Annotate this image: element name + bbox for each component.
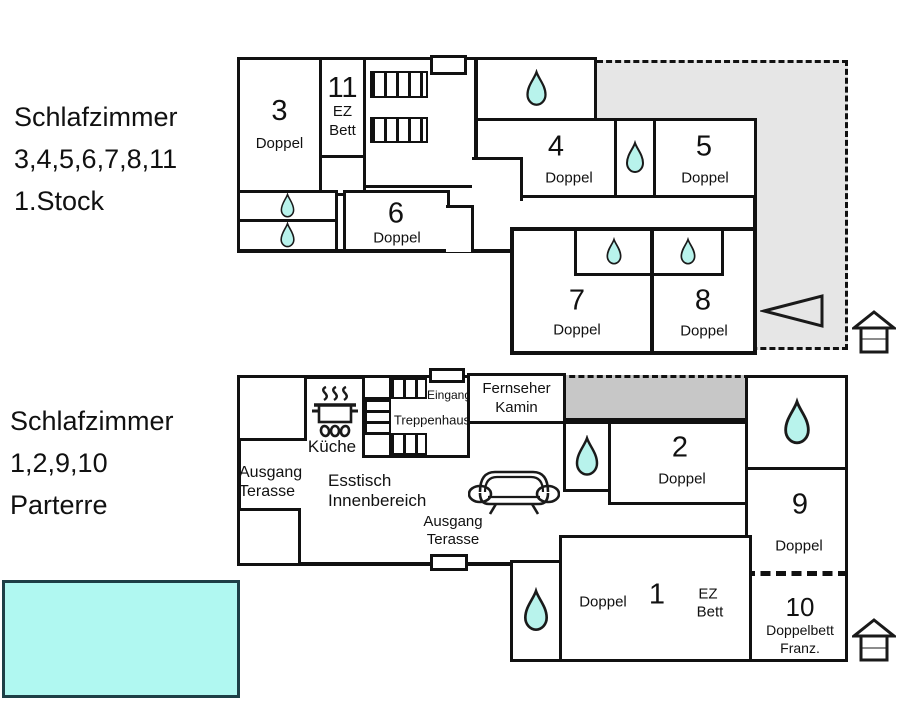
floorplan-canvas: Schlafzimmer 3,4,5,6,7,8,11 1.Stock Schl… bbox=[0, 0, 904, 704]
exit-terrace-left-label: Ausgang Terasse bbox=[239, 464, 302, 502]
dining-area-line1: Esstisch bbox=[328, 471, 426, 491]
rooms-7-8-block: 7 Doppel 8 Doppel bbox=[510, 227, 757, 355]
title-floor1-line2: 3,4,5,6,7,8,11 bbox=[14, 138, 178, 180]
stairs-flight-icon bbox=[389, 378, 427, 399]
wc-floor1-lower bbox=[237, 219, 338, 252]
room-3: 3 Doppel bbox=[237, 57, 322, 193]
tv-fireplace-room: Fernseher Kamin bbox=[467, 373, 566, 424]
window-floor0-bottom bbox=[430, 554, 468, 571]
house-ground-floor-icon bbox=[852, 618, 896, 662]
room-11-number: 11 bbox=[327, 74, 357, 103]
entrance-door bbox=[429, 368, 465, 383]
kitchen-label: Küche bbox=[308, 437, 356, 457]
room-4-type: Doppel bbox=[545, 171, 593, 186]
house-upper-floor-icon bbox=[852, 310, 896, 354]
room-2-type: Doppel bbox=[658, 472, 706, 487]
water-drop-icon bbox=[572, 435, 602, 479]
room-6-type: Doppel bbox=[373, 231, 421, 246]
dining-area-label: Esstisch Innenbereich bbox=[328, 471, 426, 511]
tv-label-line1: Fernseher bbox=[482, 380, 550, 399]
water-drop-icon bbox=[604, 237, 624, 267]
stairwell-floor1 bbox=[363, 57, 477, 188]
arrow-left-icon bbox=[760, 292, 826, 330]
bath-room7 bbox=[574, 231, 654, 276]
room-5-type: Doppel bbox=[681, 171, 729, 186]
title-floor0-line1: Schlafzimmer bbox=[10, 400, 174, 442]
room-10-type-line1: Doppelbett bbox=[766, 623, 834, 637]
stairwell-label: Treppenhaus bbox=[394, 414, 470, 427]
stairs-flight-icon bbox=[365, 397, 391, 435]
exit-terrace-left-line1: Ausgang bbox=[239, 464, 302, 483]
room-7-type: Doppel bbox=[553, 323, 601, 338]
bath-floor0-bottom bbox=[510, 560, 562, 662]
water-drop-icon bbox=[523, 69, 550, 109]
room-1-type-right-line1: EZ bbox=[698, 587, 717, 602]
bath-floor0-center bbox=[563, 421, 611, 492]
terrace-bar-floor0 bbox=[560, 375, 750, 421]
water-drop-icon bbox=[623, 140, 647, 176]
water-drop-icon bbox=[278, 193, 297, 219]
room-9: 9 Doppel bbox=[745, 467, 848, 574]
room-1: Doppel 1 EZ Bett bbox=[559, 535, 752, 662]
room-6-step bbox=[446, 205, 474, 252]
tv-label-line2: Kamin bbox=[495, 399, 538, 418]
sofa-icon bbox=[468, 460, 560, 516]
water-drop-icon bbox=[520, 587, 552, 635]
bath-between-4-5 bbox=[614, 118, 656, 198]
bath-above-room4 bbox=[475, 57, 597, 121]
room-11: 11 EZ Bett bbox=[319, 57, 366, 158]
room-5: 5 Doppel bbox=[653, 118, 757, 198]
exit-terrace-left-line2: Terasse bbox=[239, 483, 302, 502]
room-6-number: 6 bbox=[388, 200, 404, 229]
room-1-number: 1 bbox=[649, 581, 665, 610]
room-5-number: 5 bbox=[696, 133, 712, 162]
room-10: 10 Doppelbett Franz. bbox=[745, 571, 848, 662]
stairs-flight-icon bbox=[389, 433, 427, 455]
dining-area-line2: Innenbereich bbox=[328, 491, 426, 511]
storage-room bbox=[237, 375, 307, 441]
corridor-notch-floor1 bbox=[472, 157, 523, 201]
room-3-number: 3 bbox=[271, 97, 287, 126]
room-2-number: 2 bbox=[672, 434, 688, 463]
entrance-label: Eingang bbox=[427, 389, 471, 401]
wc-floor1-upper bbox=[237, 190, 338, 222]
title-floor0-line3: Parterre bbox=[10, 484, 174, 526]
room-9-number: 9 bbox=[792, 491, 808, 520]
water-drop-icon bbox=[780, 397, 814, 449]
room-10-number: 10 bbox=[786, 594, 815, 620]
room-4-number: 4 bbox=[548, 133, 564, 162]
corridor-floor1 bbox=[458, 196, 754, 230]
room-8-number: 8 bbox=[695, 287, 711, 316]
room-11-type-line2: Bett bbox=[329, 122, 356, 141]
bath-room8 bbox=[654, 231, 724, 276]
room-6: 6 Doppel bbox=[343, 190, 450, 252]
room-2: 2 Doppel bbox=[608, 421, 752, 505]
room-11-type-line1: EZ bbox=[333, 103, 352, 122]
room-9-type: Doppel bbox=[775, 539, 823, 554]
water-drop-icon bbox=[678, 237, 698, 267]
stairwell-floor0: Eingang Treppenhaus bbox=[362, 375, 470, 458]
window-floor1-top bbox=[430, 55, 467, 75]
title-floor0: Schlafzimmer 1,2,9,10 Parterre bbox=[10, 400, 174, 526]
small-room-bottom-left bbox=[237, 508, 301, 566]
stove-icon bbox=[306, 386, 364, 438]
room-3-type: Doppel bbox=[256, 135, 304, 154]
title-floor1: Schlafzimmer 3,4,5,6,7,8,11 1.Stock bbox=[14, 96, 178, 222]
exit-terrace-mid-label: Ausgang Terasse bbox=[417, 513, 489, 548]
title-floor1-line1: Schlafzimmer bbox=[14, 96, 178, 138]
room-1-type-right-line2: Bett bbox=[697, 605, 724, 620]
pool bbox=[2, 580, 240, 698]
room-1-type-left: Doppel bbox=[579, 595, 627, 610]
exit-terrace-mid-line2: Terasse bbox=[417, 531, 489, 549]
title-floor0-line2: 1,2,9,10 bbox=[10, 442, 174, 484]
room-10-type-line2: Franz. bbox=[780, 641, 820, 655]
room-8-type: Doppel bbox=[680, 324, 728, 339]
room-7-number: 7 bbox=[569, 287, 585, 316]
title-floor1-line3: 1.Stock bbox=[14, 180, 178, 222]
stairs-flight-icon bbox=[370, 71, 428, 98]
stairs-flight-icon bbox=[370, 117, 428, 143]
bath-floor0-right bbox=[745, 375, 848, 470]
water-drop-icon bbox=[278, 222, 297, 249]
